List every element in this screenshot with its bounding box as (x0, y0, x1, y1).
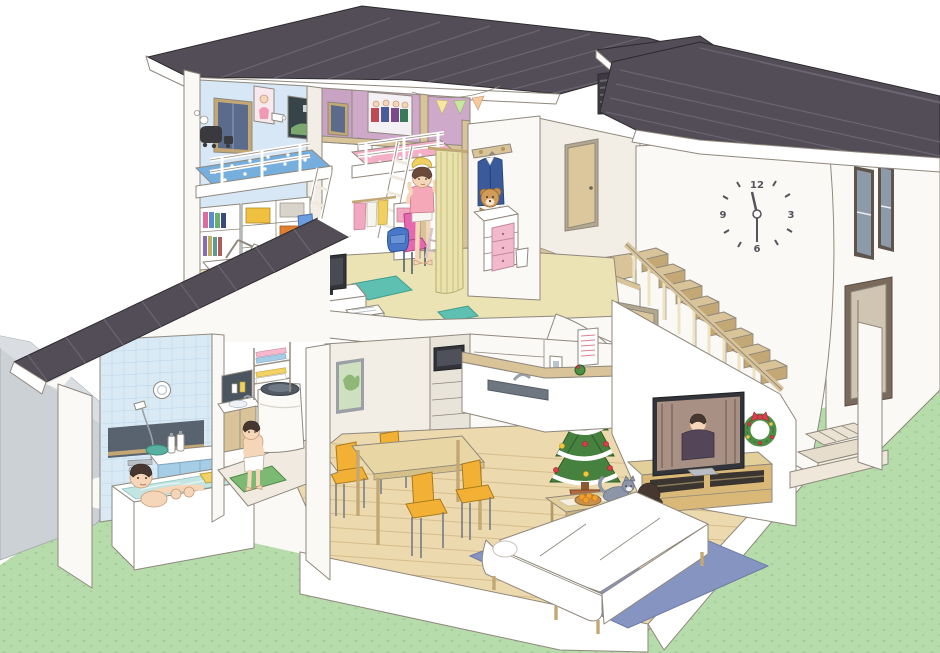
girl-top (410, 186, 434, 214)
facade-window-right (878, 164, 894, 252)
schoolbag-blue (388, 227, 409, 252)
hanging-shirt-yellow (378, 200, 388, 225)
clock-numeral-3: 3 (788, 210, 795, 221)
washing-machine (258, 383, 304, 453)
bedroom-window (214, 98, 252, 154)
shampoo-bottle-2 (177, 434, 184, 451)
clock-numeral-12: 12 (750, 180, 764, 191)
wall-calendar (578, 328, 598, 366)
upper-hall-door (565, 139, 598, 231)
clock-numeral-6: 6 (754, 244, 761, 255)
vent-fan (154, 382, 171, 399)
cut-wall-mid (306, 344, 330, 580)
box-yellow (246, 208, 270, 223)
closet (468, 116, 540, 300)
facade-window-left (854, 166, 874, 260)
poster-band (368, 92, 412, 136)
hanging-shirt-pink (354, 203, 366, 230)
waste-bin (516, 248, 528, 268)
box-gray (280, 203, 304, 217)
illustration-stage: Cutaway cross-section illustration of a … (0, 0, 940, 653)
pink-drawers (492, 223, 514, 271)
shampoo-bottle-1 (168, 436, 175, 453)
television (653, 392, 744, 476)
clock-numeral-9: 9 (720, 210, 727, 221)
bath-partition-wall (212, 334, 224, 522)
poster-idol (254, 86, 274, 124)
porch-post (858, 322, 882, 470)
house-cutaway-illustration: Cutaway cross-section illustration of a … (0, 0, 940, 653)
wash-basin (146, 445, 168, 455)
small-window (328, 102, 348, 136)
sofa-cushion (493, 541, 517, 557)
clock-center (753, 210, 761, 218)
hanging-shirt-white (367, 202, 377, 227)
porch-column-left (58, 384, 92, 588)
green-picture (336, 358, 364, 414)
boy-towel (244, 455, 264, 472)
